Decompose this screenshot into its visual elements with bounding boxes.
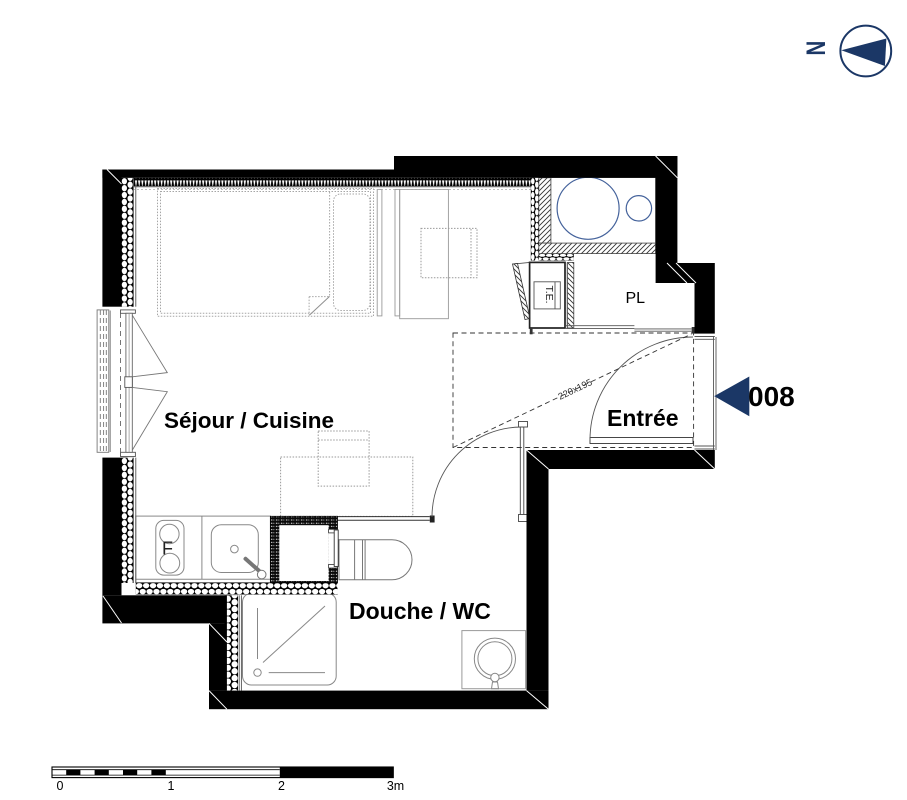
svg-text:Douche / WC: Douche / WC bbox=[349, 598, 491, 624]
svg-text:008: 008 bbox=[748, 381, 795, 412]
svg-text:Entrée: Entrée bbox=[607, 405, 679, 431]
svg-text:2: 2 bbox=[278, 779, 285, 793]
svg-text:Séjour / Cuisine: Séjour / Cuisine bbox=[164, 408, 334, 433]
svg-text:1: 1 bbox=[168, 779, 175, 793]
svg-text:PL: PL bbox=[626, 290, 646, 307]
svg-text:T.E.: T.E. bbox=[543, 286, 555, 304]
svg-text:0: 0 bbox=[57, 779, 64, 793]
svg-text:F: F bbox=[162, 539, 173, 559]
svg-text:N: N bbox=[800, 41, 831, 56]
svg-text:3m: 3m bbox=[387, 779, 404, 793]
